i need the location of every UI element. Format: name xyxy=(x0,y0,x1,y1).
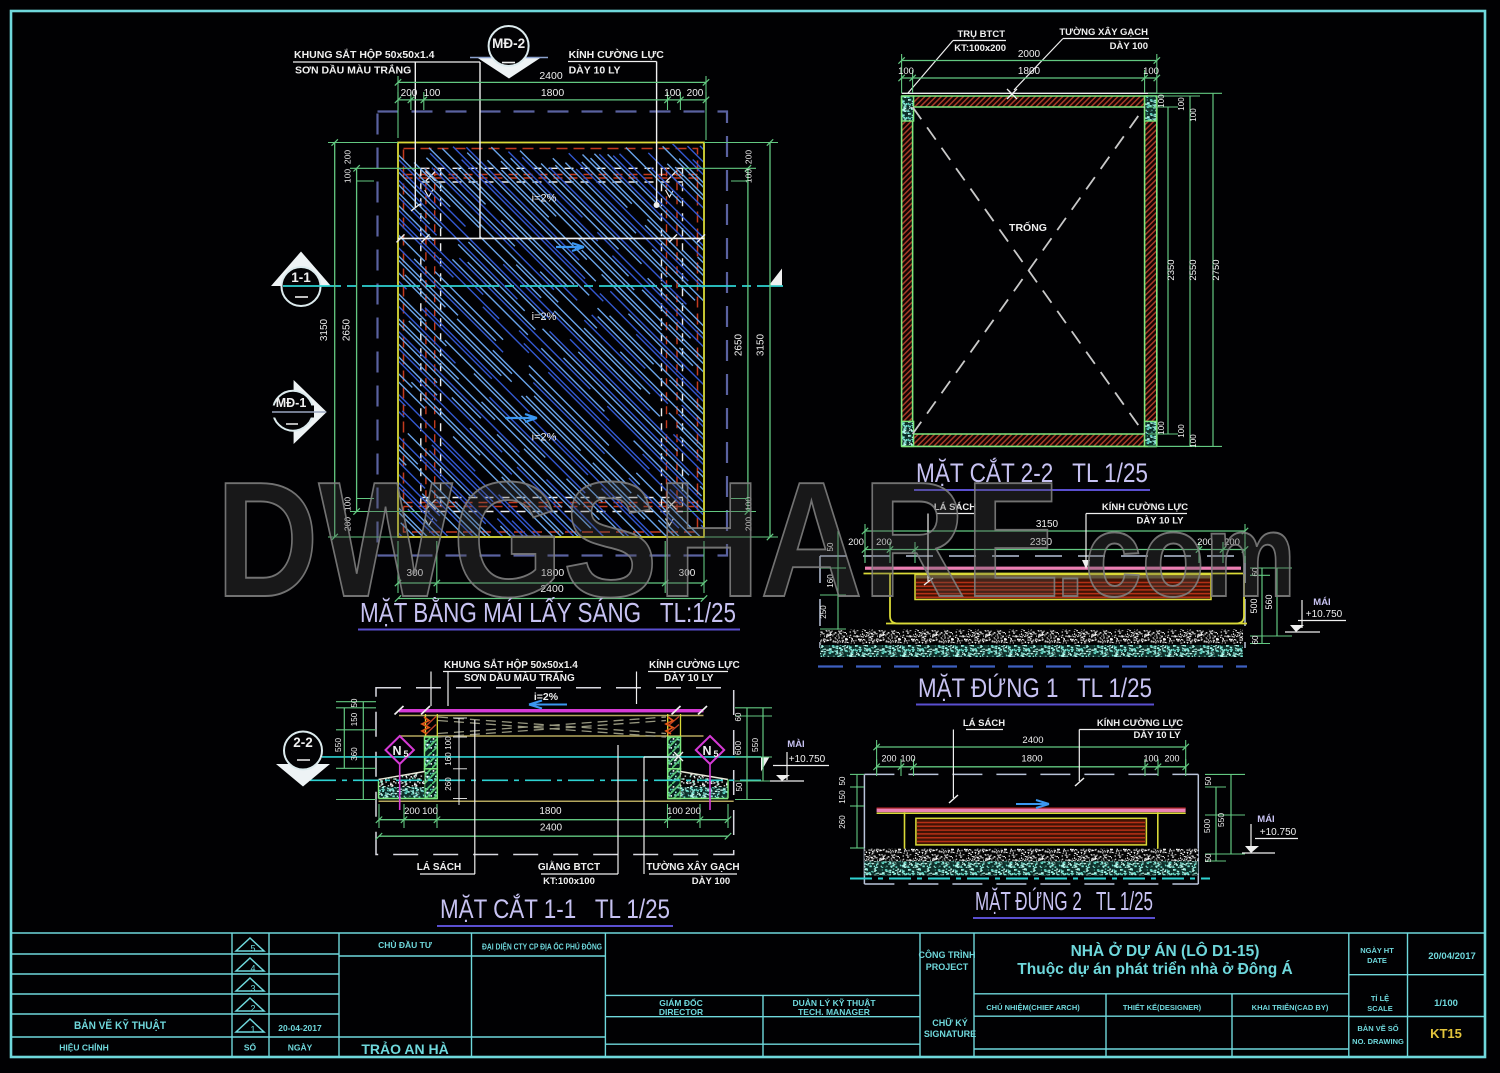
svg-text:600: 600 xyxy=(733,741,743,755)
svg-text:DÀY 10 LY: DÀY 10 LY xyxy=(664,671,714,684)
svg-text:4: 4 xyxy=(250,964,255,974)
svg-text:NGÀY: NGÀY xyxy=(288,1043,313,1053)
svg-text:1: 1 xyxy=(250,1025,255,1035)
svg-text:HIỆU CHỈNH: HIỆU CHỈNH xyxy=(59,1042,109,1053)
svg-text:KÍNH CƯỜNG LỰC: KÍNH CƯỜNG LỰC xyxy=(569,48,665,61)
svg-text:2650: 2650 xyxy=(342,318,353,341)
svg-text:2550: 2550 xyxy=(1188,259,1199,280)
svg-text:3150: 3150 xyxy=(756,333,767,356)
svg-text:TRẢO AN HÀ: TRẢO AN HÀ xyxy=(361,1041,448,1057)
svg-text:50: 50 xyxy=(735,782,744,791)
svg-text:200: 200 xyxy=(1164,754,1179,764)
svg-text:CHỮ KÝ: CHỮ KÝ xyxy=(932,1017,967,1028)
svg-text:CÔNG TRÌNH: CÔNG TRÌNH xyxy=(919,949,976,960)
svg-text:DATE: DATE xyxy=(1367,956,1387,965)
svg-text:1-1: 1-1 xyxy=(291,270,311,285)
svg-text:SƠN DẦU MÀU TRẮNG: SƠN DẦU MÀU TRẮNG xyxy=(295,64,411,77)
svg-text:260: 260 xyxy=(838,815,847,829)
svg-text:DÀY 10 LY: DÀY 10 LY xyxy=(1134,730,1182,741)
svg-text:550: 550 xyxy=(1216,813,1226,827)
svg-text:DÀY 100: DÀY 100 xyxy=(1110,41,1148,52)
svg-text:MẶT ĐỨNG 2 TL 1/25: MẶT ĐỨNG 2 TL 1/25 xyxy=(975,886,1153,916)
svg-text:N: N xyxy=(702,744,711,758)
svg-text:MÁI: MÁI xyxy=(1313,597,1330,608)
svg-text:2650: 2650 xyxy=(734,333,745,356)
svg-text:100: 100 xyxy=(898,66,914,77)
svg-text:MẶT ĐỨNG 1 TL 1/25: MẶT ĐỨNG 1 TL 1/25 xyxy=(918,672,1152,703)
svg-text:CHỦ NHIỆM(CHIEF ARCH): CHỦ NHIỆM(CHIEF ARCH) xyxy=(986,1003,1080,1012)
svg-text:100: 100 xyxy=(343,169,353,183)
svg-text:100: 100 xyxy=(664,88,681,99)
svg-text:THIẾT KẾ(DESIGNER): THIẾT KẾ(DESIGNER) xyxy=(1123,1002,1202,1012)
svg-text:KT:100x100: KT:100x100 xyxy=(543,876,595,887)
svg-text:TRỤ BTCT: TRỤ BTCT xyxy=(958,29,1006,40)
svg-text:200: 200 xyxy=(343,150,353,164)
svg-text:i=2%: i=2% xyxy=(532,311,557,323)
svg-text:100: 100 xyxy=(1143,66,1159,77)
svg-text:1800: 1800 xyxy=(1021,754,1042,765)
svg-text:MĐ-1: MĐ-1 xyxy=(276,396,307,410)
svg-text:NGÀY HT: NGÀY HT xyxy=(1360,946,1394,955)
svg-text:TƯỜNG XÂY GẠCH: TƯỜNG XÂY GẠCH xyxy=(1059,26,1148,38)
svg-text:KHAI TRIỂN(CAD BY): KHAI TRIỂN(CAD BY) xyxy=(1252,1003,1329,1012)
svg-text:1/100: 1/100 xyxy=(1434,998,1458,1009)
svg-text:TƯỜNG XÂY GẠCH: TƯỜNG XÂY GẠCH xyxy=(646,860,739,873)
svg-text:200: 200 xyxy=(687,88,704,99)
svg-text:MÁI: MÁI xyxy=(1257,814,1274,825)
svg-text:LÁ SÁCH: LÁ SÁCH xyxy=(963,718,1005,729)
svg-text:2400: 2400 xyxy=(540,823,563,834)
svg-text:5: 5 xyxy=(403,749,408,759)
svg-text:550: 550 xyxy=(333,738,343,752)
svg-text:150: 150 xyxy=(350,712,359,726)
svg-text:NO. DRAWING: NO. DRAWING xyxy=(1352,1037,1404,1046)
svg-text:.com: .com xyxy=(1056,490,1296,622)
svg-text:2000: 2000 xyxy=(1018,49,1041,60)
svg-text:100: 100 xyxy=(1177,97,1186,111)
svg-text:2400: 2400 xyxy=(539,70,563,82)
svg-text:200: 200 xyxy=(881,754,896,764)
svg-text:BẢN VẼ SỐ: BẢN VẼ SỐ xyxy=(1357,1023,1398,1033)
svg-text:60: 60 xyxy=(734,712,743,721)
svg-text:MĐ-2: MĐ-2 xyxy=(492,36,525,51)
svg-text:100: 100 xyxy=(1143,754,1158,764)
svg-text:100: 100 xyxy=(667,806,683,817)
svg-text:100: 100 xyxy=(1177,424,1186,438)
svg-text:N: N xyxy=(392,744,401,758)
svg-text:200: 200 xyxy=(685,806,701,817)
svg-text:KT15: KT15 xyxy=(1430,1026,1462,1041)
svg-text:KÍNH CƯỜNG LỰC: KÍNH CƯỜNG LỰC xyxy=(649,658,740,671)
svg-text:2: 2 xyxy=(250,1004,255,1014)
svg-text:100: 100 xyxy=(1189,434,1198,448)
svg-text:KÍNH CƯỜNG LỰC: KÍNH CƯỜNG LỰC xyxy=(1097,717,1183,729)
svg-text:1800: 1800 xyxy=(539,806,562,817)
svg-text:SCALE: SCALE xyxy=(1367,1004,1392,1013)
svg-text:DÀY 100: DÀY 100 xyxy=(692,876,730,887)
svg-text:2350: 2350 xyxy=(1166,259,1177,280)
svg-text:5: 5 xyxy=(713,749,718,759)
svg-text:KHUNG SẮT HỘP 50x50x1.4: KHUNG SẮT HỘP 50x50x1.4 xyxy=(444,658,578,671)
svg-text:160: 160 xyxy=(444,752,453,766)
svg-text:50: 50 xyxy=(350,698,359,707)
svg-text:CHỦ ĐẦU TƯ: CHỦ ĐẦU TƯ xyxy=(378,939,433,950)
svg-text:2400: 2400 xyxy=(1022,735,1043,746)
svg-text:100: 100 xyxy=(444,736,453,750)
svg-text:360: 360 xyxy=(350,747,359,761)
svg-text:MẶT CẮT 1-1 TL 1/25: MẶT CẮT 1-1 TL 1/25 xyxy=(440,893,670,924)
svg-text:50: 50 xyxy=(1204,853,1213,862)
svg-text:20/04/2017: 20/04/2017 xyxy=(1428,951,1476,962)
svg-text:KHUNG SẮT HỘP 50x50x1.4: KHUNG SẮT HỘP 50x50x1.4 xyxy=(294,48,435,61)
svg-text:2750: 2750 xyxy=(1211,259,1222,280)
svg-text:Thuộc dự án phát triển nhà ở Đ: Thuộc dự án phát triển nhà ở Đông Á xyxy=(1017,961,1292,978)
svg-text:50: 50 xyxy=(1204,776,1213,785)
svg-text:60: 60 xyxy=(1251,635,1260,644)
svg-text:SƠN DẦU MÀU TRẮNG: SƠN DẦU MÀU TRẮNG xyxy=(464,671,575,684)
svg-text:+10.750: +10.750 xyxy=(789,754,826,765)
svg-text:100: 100 xyxy=(1157,421,1166,435)
svg-text:1800: 1800 xyxy=(1018,66,1041,77)
svg-text:1800: 1800 xyxy=(541,87,565,99)
svg-text:i=2%: i=2% xyxy=(532,432,557,444)
svg-text:ĐẠI DIỆN CTY CP ĐỊA ỐC PHÚ ĐÔN: ĐẠI DIỆN CTY CP ĐỊA ỐC PHÚ ĐÔNG xyxy=(482,942,602,952)
svg-text:NHÀ Ở DỰ ÁN (LÔ D1-15): NHÀ Ở DỰ ÁN (LÔ D1-15) xyxy=(1071,942,1260,960)
svg-text:3150: 3150 xyxy=(319,318,330,341)
svg-text:5: 5 xyxy=(250,944,255,954)
svg-text:500: 500 xyxy=(1202,819,1212,833)
svg-text:TECH. MANAGER: TECH. MANAGER xyxy=(798,1007,870,1017)
svg-text:100: 100 xyxy=(424,88,441,99)
svg-text:100: 100 xyxy=(1157,94,1166,108)
svg-text:TỈ LỆ: TỈ LỆ xyxy=(1371,994,1389,1003)
svg-text:i=2%: i=2% xyxy=(532,193,557,205)
svg-text:+10.750: +10.750 xyxy=(1260,827,1297,838)
svg-text:+10.750: +10.750 xyxy=(1306,609,1343,620)
svg-text:BẢN VẼ KỸ THUẬT: BẢN VẼ KỸ THUẬT xyxy=(74,1019,166,1032)
svg-text:SIGNATURE: SIGNATURE xyxy=(924,1029,976,1039)
svg-text:150: 150 xyxy=(838,790,847,804)
svg-text:DIRECTOR: DIRECTOR xyxy=(659,1007,703,1017)
svg-text:DWGSHARE: DWGSHARE xyxy=(216,448,1060,631)
svg-text:100: 100 xyxy=(422,806,438,817)
svg-text:100: 100 xyxy=(900,754,915,764)
svg-text:LÁ SÁCH: LÁ SÁCH xyxy=(417,860,461,873)
svg-text:200: 200 xyxy=(404,806,420,817)
svg-text:550: 550 xyxy=(750,738,760,752)
svg-text:DÀY 10 LY: DÀY 10 LY xyxy=(569,64,621,77)
svg-text:260: 260 xyxy=(444,777,453,791)
svg-text:MÀI: MÀI xyxy=(787,739,804,750)
svg-text:SỐ: SỐ xyxy=(244,1042,257,1053)
svg-text:KT:100x200: KT:100x200 xyxy=(954,43,1006,54)
svg-text:200: 200 xyxy=(401,88,418,99)
svg-text:TRỐNG: TRỐNG xyxy=(1009,220,1047,234)
svg-text:GIẰNG BTCT: GIẰNG BTCT xyxy=(538,860,600,873)
svg-text:3: 3 xyxy=(250,984,255,994)
svg-text:2-2: 2-2 xyxy=(293,735,313,750)
svg-text:200: 200 xyxy=(744,150,754,164)
svg-text:100: 100 xyxy=(1189,108,1198,122)
svg-text:50: 50 xyxy=(838,776,847,785)
svg-text:PROJECT: PROJECT xyxy=(926,962,969,972)
svg-text:20-04-2017: 20-04-2017 xyxy=(278,1023,322,1033)
